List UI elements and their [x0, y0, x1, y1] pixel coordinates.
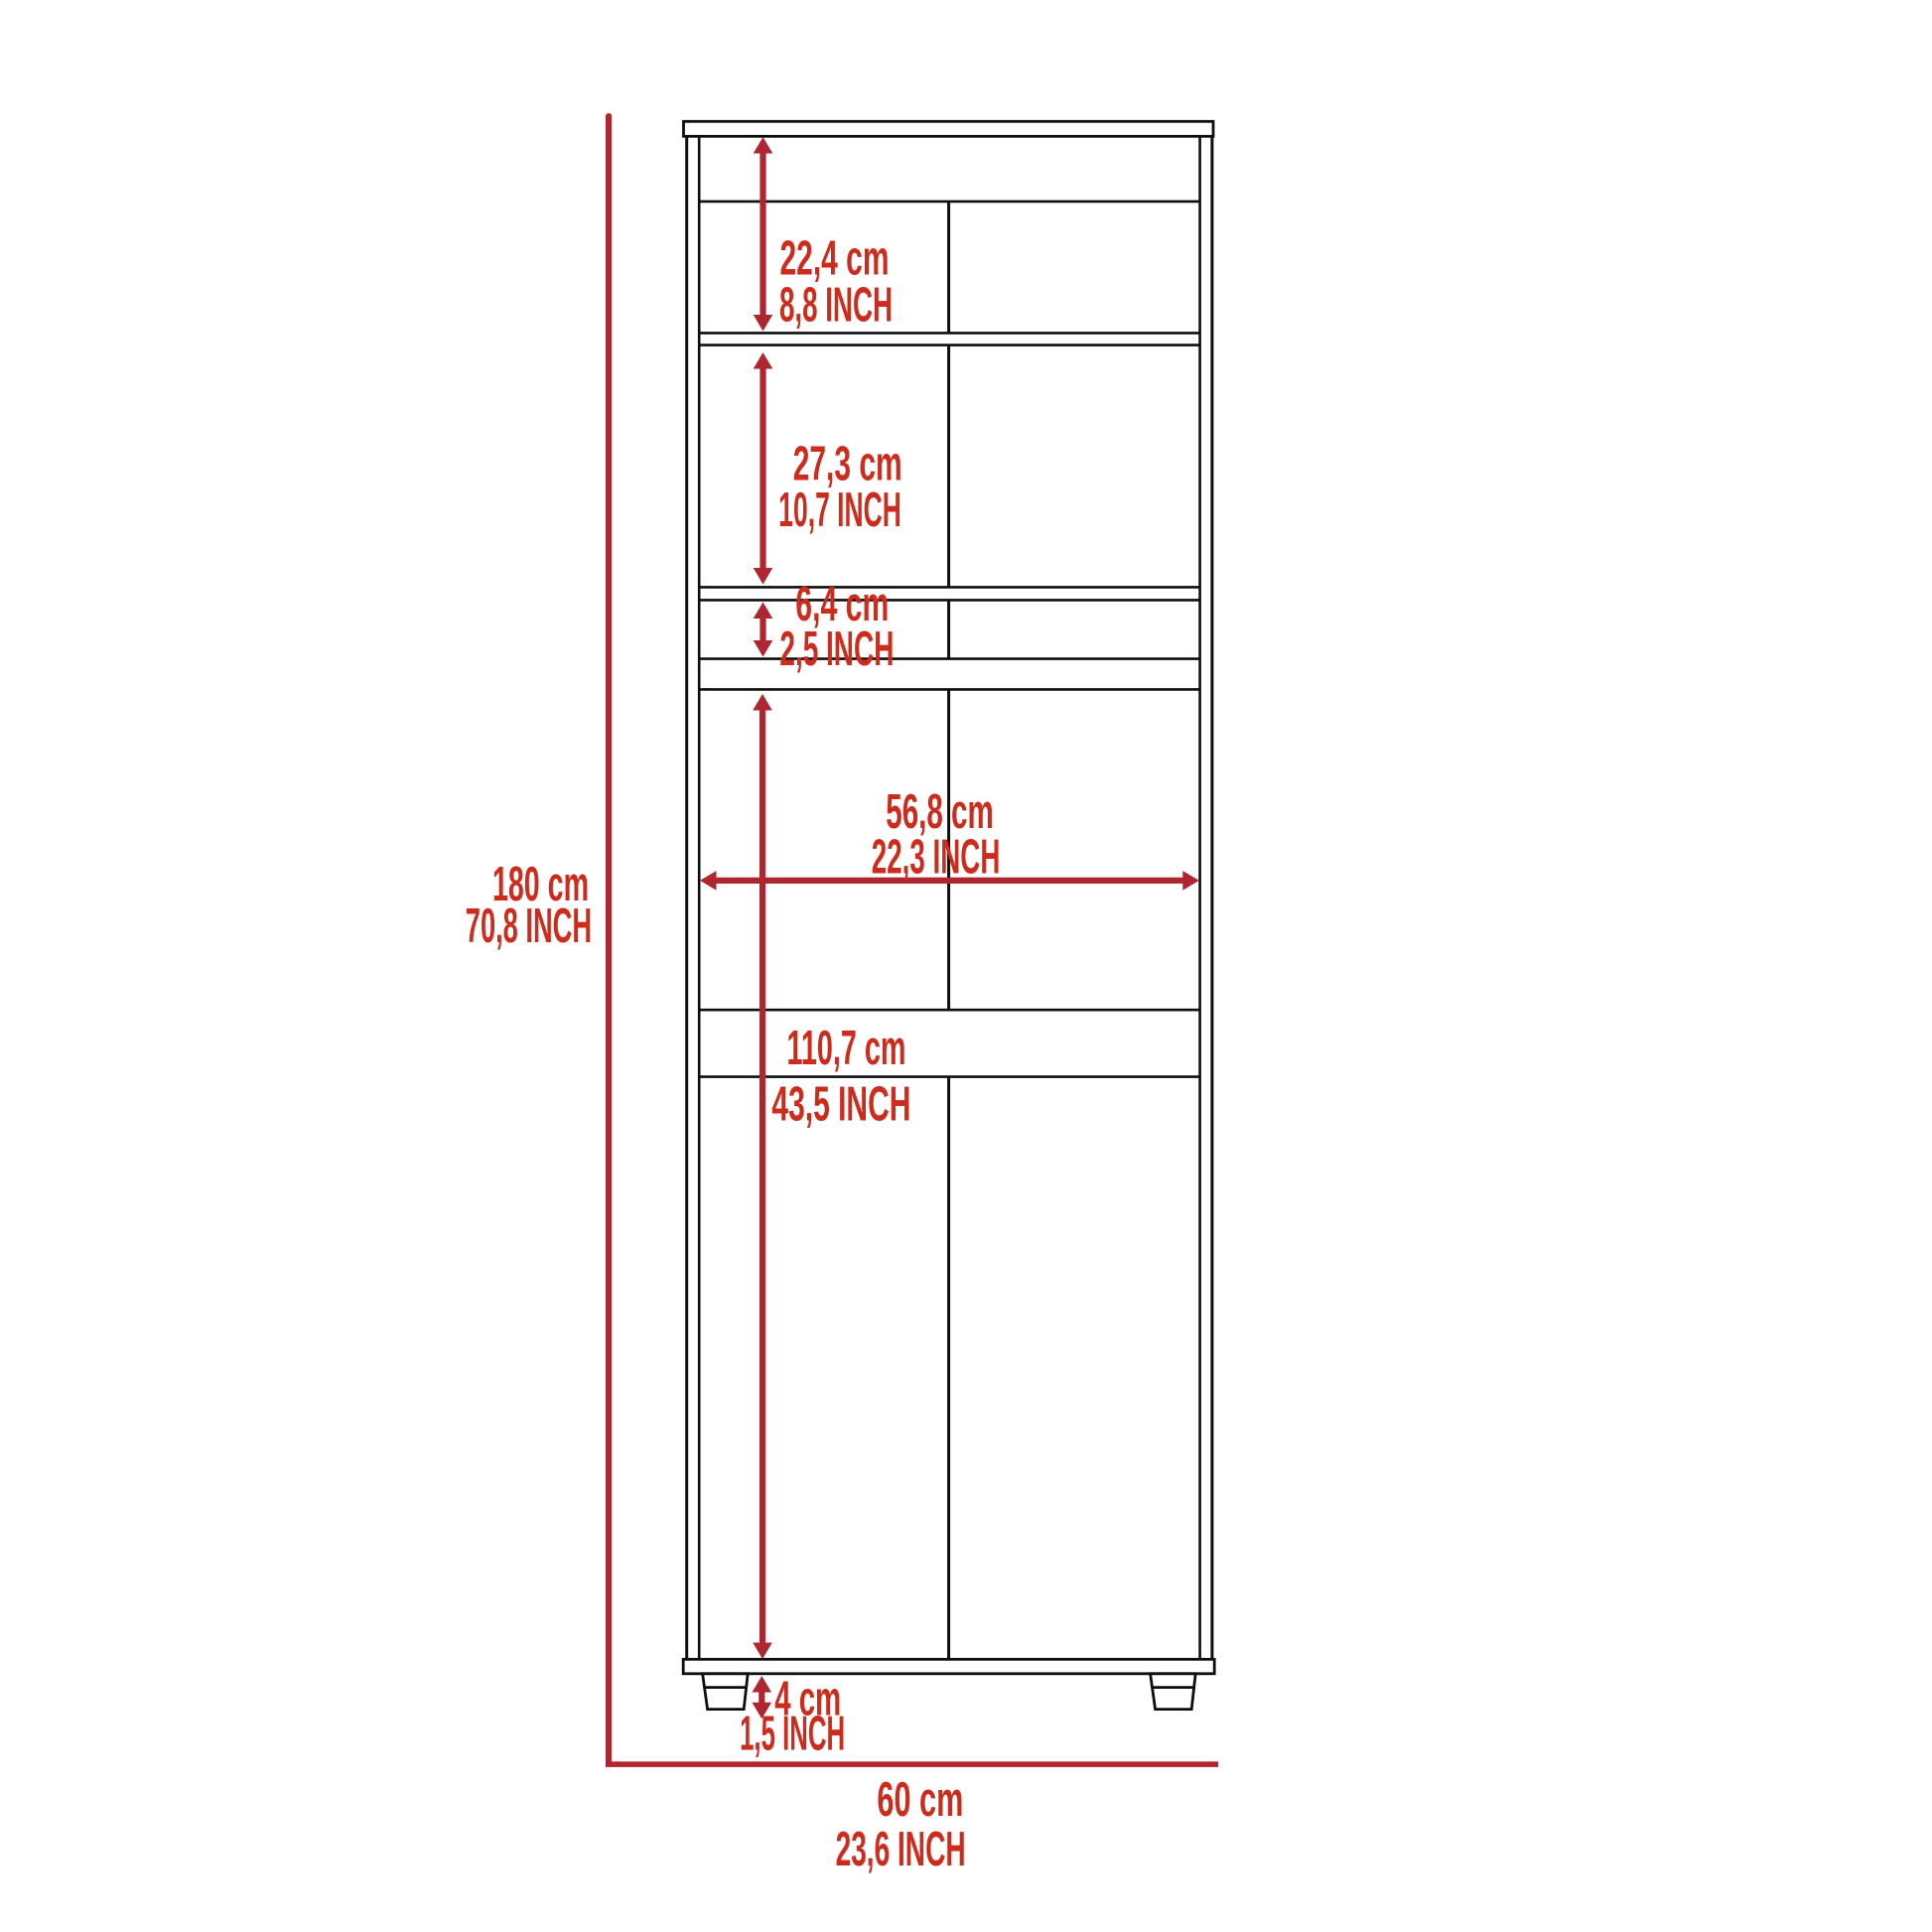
svg-text:10,7 INCH: 10,7 INCH	[778, 483, 901, 537]
svg-text:22,4 cm: 22,4 cm	[780, 232, 890, 286]
svg-text:1,5 INCH: 1,5 INCH	[740, 1708, 845, 1761]
svg-text:2,5 INCH: 2,5 INCH	[779, 622, 894, 676]
svg-text:43,5 INCH: 43,5 INCH	[771, 1078, 910, 1132]
svg-text:8,8 INCH: 8,8 INCH	[779, 279, 893, 333]
svg-text:70,8 INCH: 70,8 INCH	[466, 899, 592, 953]
svg-text:22,3 INCH: 22,3 INCH	[872, 831, 1001, 885]
svg-text:23,6 INCH: 23,6 INCH	[836, 1823, 966, 1876]
svg-text:110,7 cm: 110,7 cm	[787, 1022, 906, 1075]
svg-text:60 cm: 60 cm	[877, 1773, 963, 1827]
